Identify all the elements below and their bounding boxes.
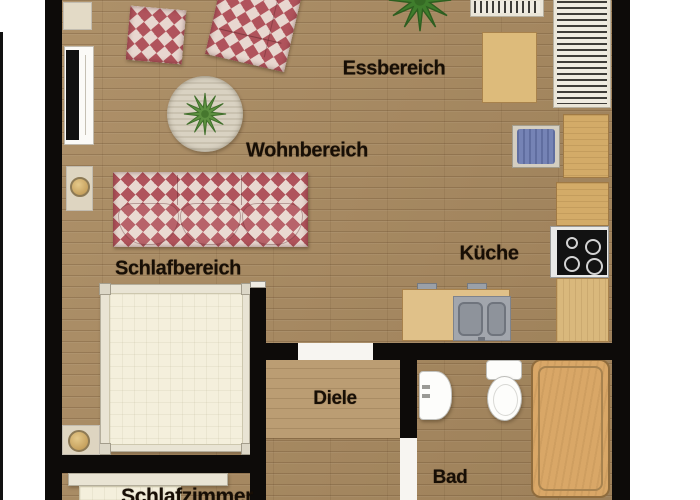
door-opening-bath — [400, 438, 417, 500]
toilet-bowl — [487, 376, 522, 421]
cooktop — [557, 230, 607, 275]
room-label-wohnbereich: Wohnbereich — [246, 140, 368, 163]
kitchen-cabinet-lower — [556, 182, 609, 226]
radiator-bench-top — [470, 0, 544, 17]
room-label-bad: Bad — [433, 467, 468, 489]
wall-right-outer — [612, 0, 630, 500]
sink-unit — [453, 296, 511, 341]
burner-icon — [564, 256, 580, 272]
radiator-bench-right — [553, 0, 611, 108]
burner-icon — [585, 239, 601, 255]
sink-drain-icon — [478, 337, 485, 341]
bed — [100, 284, 250, 452]
room-label-essbereich: Essbereich — [343, 58, 446, 81]
chair — [512, 125, 560, 168]
kitchen-counter-right — [556, 278, 609, 342]
burner-icon — [586, 258, 603, 275]
ottoman — [126, 6, 186, 65]
wall-left-outer — [45, 0, 62, 500]
wall-end-cap — [250, 281, 266, 288]
potted-plant-icon — [182, 91, 228, 137]
bedside-table — [62, 425, 100, 455]
dining-table — [482, 32, 537, 103]
washbasin — [419, 371, 452, 420]
sink-basin — [458, 302, 483, 336]
stove — [550, 226, 609, 278]
floorplan-image: Essbereich Wohnbereich Schlafbereich Küc… — [0, 0, 700, 500]
side-table — [66, 166, 93, 211]
wall-bedroom — [45, 455, 266, 473]
chair-cushion — [517, 129, 555, 164]
table-lamp-icon — [70, 177, 90, 197]
image-edge-line — [0, 32, 3, 500]
sideboard — [63, 2, 92, 30]
room-label-diele: Diele — [313, 388, 356, 410]
kitchen-cabinet-upper — [563, 114, 609, 178]
wall-hall-bath — [400, 360, 417, 438]
sink-basin — [487, 302, 506, 336]
room-label-schlafzimmer: Schlafzimmer — [121, 485, 253, 500]
room-label-kueche: Küche — [459, 243, 518, 266]
tv-screen-icon — [66, 50, 79, 140]
wall-hall-left-stub — [265, 343, 298, 360]
door-opening-hall — [298, 343, 373, 360]
large-plant-icon — [386, 0, 454, 34]
bathtub — [531, 359, 610, 498]
kitchen-counter-sink — [402, 289, 510, 341]
room-label-schlafbereich: Schlafbereich — [115, 258, 241, 281]
burner-icon — [566, 237, 578, 249]
tv-unit-groove — [85, 55, 86, 135]
sofa — [113, 172, 308, 247]
tv-unit — [64, 46, 94, 145]
wall-kitchen-bath — [373, 343, 612, 360]
table-lamp-icon — [68, 430, 90, 452]
